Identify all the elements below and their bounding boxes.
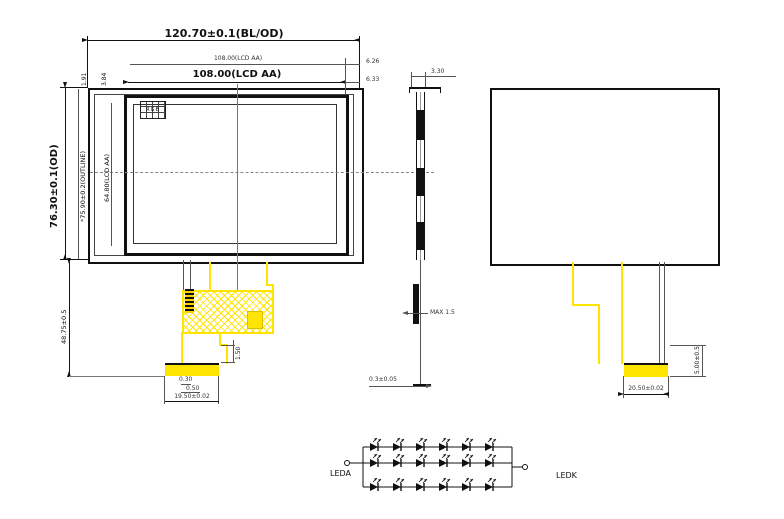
fpc-outline	[226, 344, 228, 364]
dim-pitch: 0.50	[186, 386, 199, 392]
arrowhead	[402, 311, 408, 315]
ext-line	[221, 345, 235, 346]
dim-line-back-connector	[624, 394, 668, 395]
fpc-outline-back	[621, 262, 623, 364]
vertical-centerline	[237, 84, 238, 290]
side-flange-end	[409, 87, 410, 93]
fpc-trace-line	[190, 260, 191, 291]
led-symbol	[439, 454, 450, 467]
fpc-tail-line	[664, 262, 665, 363]
dim-outline-height: *75.90±0.2(OUTLINE)	[80, 151, 87, 222]
led-symbol	[416, 454, 427, 467]
ext-line	[425, 72, 426, 87]
dim-line-connector-width	[165, 401, 219, 402]
rgb-pixel-icon: RGB	[140, 101, 166, 119]
dim-aa-width-ref: 108.00(LCD AA)	[130, 56, 346, 62]
dim-fpc-thickness: 0.3±0.05	[369, 377, 397, 383]
dim-connector-extension: 5.00±0.5	[695, 346, 701, 374]
dim-line-thickness	[411, 76, 456, 77]
led-symbol	[485, 454, 496, 467]
arrowhead	[67, 258, 71, 264]
dim-gap-right-bottom: 6.33	[366, 77, 379, 83]
cathode-terminal	[523, 465, 528, 470]
fpc-outline-back	[598, 304, 600, 364]
arrowhead	[63, 82, 67, 88]
fpc-trace-line	[183, 260, 184, 291]
dim-line-gap-top	[346, 64, 360, 65]
led-cathode-label: LEDK	[556, 472, 577, 480]
led-anode-label: LEDA	[330, 470, 351, 478]
fpc-outline-back	[572, 262, 574, 306]
side-tape-block	[417, 222, 424, 250]
ext-line	[69, 376, 165, 377]
dim-line-od-height	[65, 88, 66, 260]
fpc-component	[247, 311, 263, 329]
dim-gap-right-top: 6.26	[366, 59, 379, 65]
horizontal-centerline	[90, 172, 434, 173]
led-symbol	[439, 478, 450, 491]
engineering-drawing: RGB 120.70±0.1(BL/OD) 108.00(LCD AA) 6.2…	[0, 0, 784, 519]
led-symbol	[393, 478, 404, 491]
dim-line-bend	[233, 340, 234, 363]
arrowhead	[663, 392, 669, 396]
dim-bend-height: 1.50	[236, 347, 242, 360]
led-symbol	[393, 454, 404, 467]
dim-thickness: 3.30	[431, 69, 444, 75]
dim-connector-width: 19.50±0.02	[160, 394, 224, 400]
dim-line-aa-ref	[130, 64, 346, 65]
dim-aa-width: 108.00(LCD AA)	[128, 70, 346, 80]
dim-pad-width: 0.30	[179, 377, 192, 383]
dim-line-od-width	[88, 40, 360, 41]
ext-line	[670, 376, 706, 377]
fpc-connector-tab	[165, 363, 219, 376]
leader-line	[406, 313, 428, 314]
led-symbol	[485, 438, 496, 451]
back-connector-tab	[624, 363, 668, 377]
led-symbol	[462, 438, 473, 451]
dim-line-aa	[128, 82, 346, 83]
front-active-area	[133, 104, 337, 244]
arrowhead	[123, 80, 129, 84]
ext-line	[221, 362, 235, 363]
fpc-outline	[209, 262, 211, 291]
side-flange-end	[440, 87, 441, 93]
dim-line-extension	[702, 345, 703, 377]
ext-line	[359, 36, 360, 88]
arrowhead	[618, 392, 624, 396]
dim-edge-offset-b: 3.84	[102, 73, 108, 86]
led-symbol	[416, 438, 427, 451]
fpc-outline	[181, 332, 183, 364]
side-top-flange	[409, 87, 441, 89]
front-bezel-right-edge	[347, 95, 348, 253]
dim-component-height: MAX 1.5	[430, 310, 455, 316]
dim-fpc-drop: 48.75±0.5	[61, 310, 68, 344]
ext-line	[345, 58, 346, 95]
side-tape-block	[417, 168, 424, 196]
side-tape-block	[417, 110, 424, 140]
fpc-outline-back	[572, 304, 600, 306]
fpc-contact-pins	[185, 289, 194, 313]
led-symbol	[462, 454, 473, 467]
led-symbol	[370, 454, 381, 467]
leader-line	[369, 386, 427, 387]
side-profile-line	[424, 92, 425, 260]
led-symbol	[370, 438, 381, 451]
back-outline	[490, 88, 720, 266]
dim-aa-height: 64.80(LCD AA)	[104, 154, 111, 202]
led-symbol	[416, 478, 427, 491]
arrowhead	[426, 384, 432, 388]
led-symbol	[393, 438, 404, 451]
side-connector-block	[413, 284, 419, 324]
dim-line-gap-bottom	[346, 82, 360, 83]
led-symbol	[485, 478, 496, 491]
ext-line	[411, 72, 412, 87]
dim-line-aa-height	[111, 103, 112, 246]
led-symbol	[462, 478, 473, 491]
dim-od-height: 76.30±0.1(OD)	[50, 144, 60, 228]
led-symbol	[370, 478, 381, 491]
dim-back-connector-width: 20.50±0.02	[614, 386, 678, 392]
dim-line-fpc-drop	[69, 262, 70, 377]
side-fpc-tail	[420, 260, 421, 385]
fpc-outline	[266, 262, 268, 285]
led-symbol	[439, 438, 450, 451]
fpc-tail-line	[659, 262, 660, 363]
dim-edge-offset-a: 1.91	[82, 73, 88, 86]
dim-od-width: 120.70±0.1(BL/OD)	[88, 28, 360, 39]
anode-terminal	[345, 461, 350, 466]
led-ladder-diagram	[330, 423, 565, 513]
